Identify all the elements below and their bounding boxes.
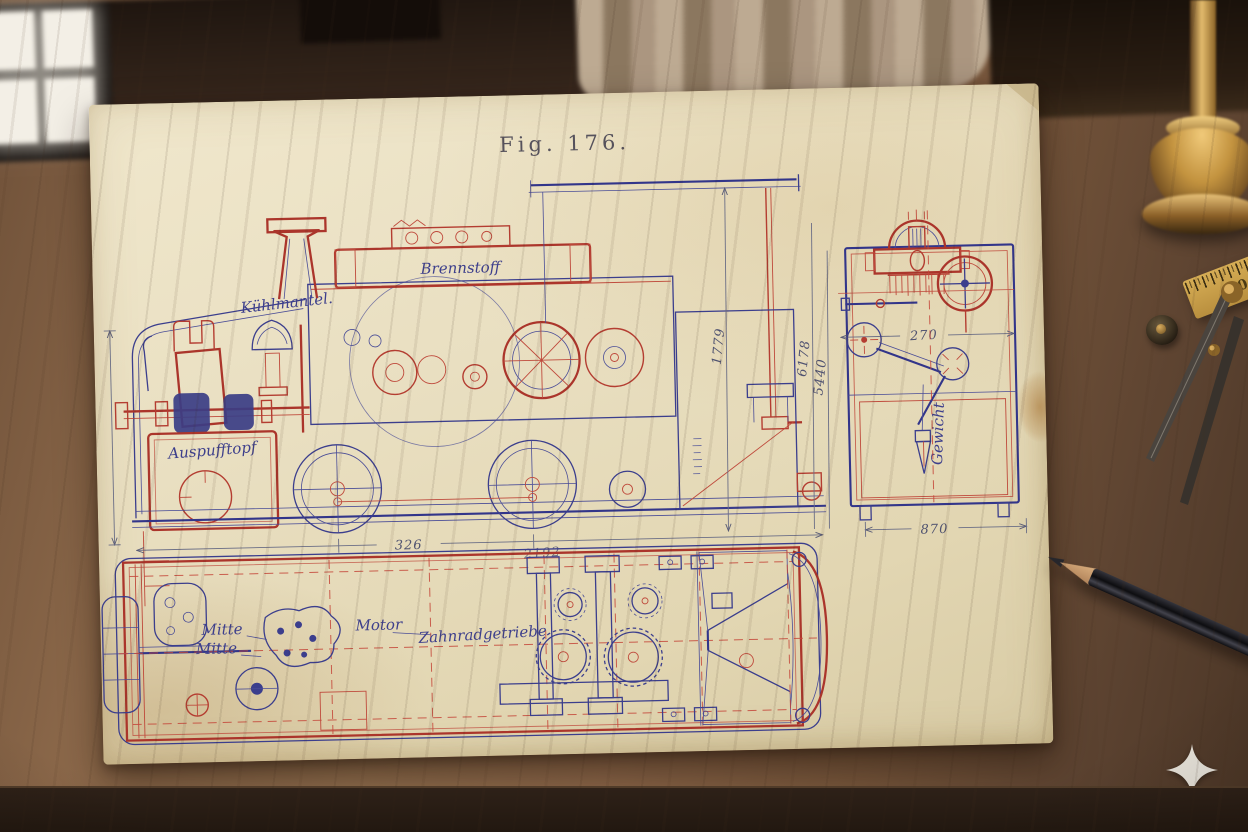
- side-view: Auspufftopf Kühlmantel.: [101, 174, 836, 607]
- desk-front-edge: [0, 786, 1248, 832]
- window-pane: [0, 11, 36, 71]
- dim-height-a: 6178: [795, 339, 814, 377]
- compass-divider: [1118, 262, 1248, 522]
- dim-gauge: 270: [909, 328, 939, 345]
- dim-height: 1779: [710, 327, 729, 365]
- figure-drawing: Fig. 176.: [89, 83, 1054, 764]
- window-pane: [42, 9, 94, 69]
- lamp-base: [1140, 0, 1248, 245]
- boiler-label: Kühlmantel.: [239, 289, 334, 317]
- dim-height-b: 5440: [811, 358, 830, 396]
- exhaust-label: Auspufftopf: [166, 438, 260, 463]
- dim-width: 870: [920, 522, 948, 538]
- dim-length: 326: [395, 538, 423, 554]
- blueprint-paper: Fig. 176.: [89, 83, 1054, 764]
- pencil-lead: [1046, 552, 1065, 568]
- pencil-body: [1087, 568, 1248, 661]
- centerline-label-1: Mitte: [200, 620, 243, 639]
- end-view: 270 Gewicht: [836, 207, 1026, 539]
- motor-label: Motor: [354, 615, 403, 634]
- lamp-stem: [1190, 0, 1216, 132]
- lamp-rim: [1142, 194, 1248, 234]
- window-pane: [0, 79, 38, 144]
- fuel-tank-label: Brennstoff: [419, 258, 503, 278]
- centerline-label-2: Mitte: [195, 639, 238, 658]
- pencil: [1044, 549, 1248, 661]
- gearbox-label: Zahnradgetriebe: [417, 622, 547, 647]
- plan-view: Mitte Mitte Motor Zahnradgetriebe: [101, 543, 829, 745]
- plumb-label: Gewicht: [928, 401, 948, 465]
- figure-title: Fig. 176.: [499, 130, 630, 157]
- desk-scene: Fig. 176.: [0, 0, 1248, 832]
